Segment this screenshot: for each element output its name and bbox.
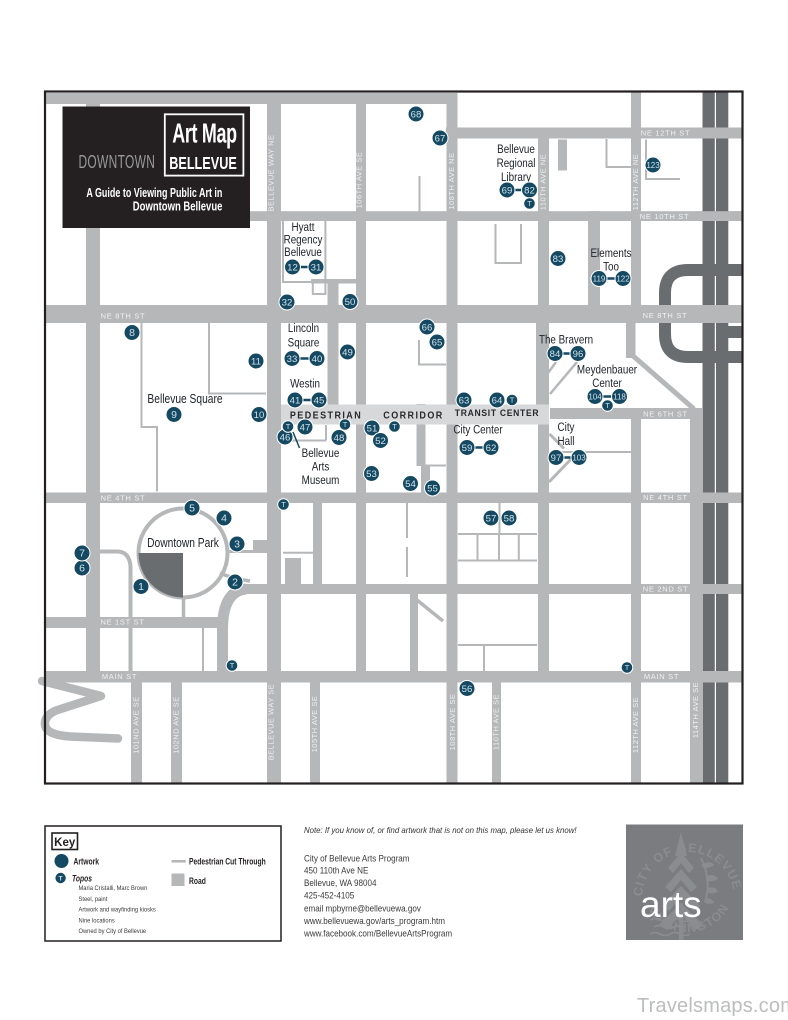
svg-text:40: 40 xyxy=(312,354,323,365)
svg-text:108TH AVE NE: 108TH AVE NE xyxy=(447,152,456,209)
svg-text:T: T xyxy=(510,396,515,405)
svg-text:Steel, paint: Steel, paint xyxy=(79,896,108,904)
svg-text:63: 63 xyxy=(459,396,470,407)
svg-text:112TH AVE SE: 112TH AVE SE xyxy=(631,697,640,753)
svg-text:Art Map: Art Map xyxy=(172,118,236,149)
svg-text:T: T xyxy=(625,663,630,672)
svg-text:Meydenbauer: Meydenbauer xyxy=(577,364,637,377)
svg-text:106TH AVE SE: 106TH AVE SE xyxy=(355,152,364,209)
svg-text:4: 4 xyxy=(221,513,227,525)
svg-text:Road: Road xyxy=(189,876,206,886)
svg-text:Bellevue: Bellevue xyxy=(497,143,535,156)
svg-text:64: 64 xyxy=(492,396,503,407)
svg-text:Hyatt: Hyatt xyxy=(292,221,315,234)
svg-text:Elements: Elements xyxy=(590,247,631,260)
svg-text:10: 10 xyxy=(254,410,265,421)
svg-text:T: T xyxy=(527,199,532,208)
svg-text:55: 55 xyxy=(427,484,438,495)
svg-text:96: 96 xyxy=(573,349,584,360)
svg-text:City Center: City Center xyxy=(453,424,503,437)
svg-text:BELLEVUE WAY NE: BELLEVUE WAY NE xyxy=(267,135,276,212)
svg-text:Square: Square xyxy=(288,337,320,350)
svg-text:7: 7 xyxy=(79,548,85,560)
svg-text:MAIN ST: MAIN ST xyxy=(102,672,137,681)
svg-text:112TH AVE NE: 112TH AVE NE xyxy=(631,154,640,211)
svg-text:49: 49 xyxy=(342,348,353,359)
svg-text:52: 52 xyxy=(375,436,386,447)
svg-text:Lincoln: Lincoln xyxy=(288,322,319,335)
svg-text:T: T xyxy=(392,422,397,431)
svg-text:425-452-4105: 425-452-4105 xyxy=(304,890,355,900)
svg-text:47: 47 xyxy=(300,423,311,434)
svg-text:45: 45 xyxy=(314,396,325,407)
svg-text:46: 46 xyxy=(280,433,291,444)
svg-text:MAIN ST: MAIN ST xyxy=(644,672,679,681)
svg-text:59: 59 xyxy=(462,443,473,454)
svg-text:Key: Key xyxy=(54,837,76,849)
svg-text:54: 54 xyxy=(405,479,416,490)
svg-text:108TH AVE SE: 108TH AVE SE xyxy=(448,694,457,751)
svg-text:Downtown Park: Downtown Park xyxy=(147,537,219,550)
svg-text:101ND AVE SE: 101ND AVE SE xyxy=(132,696,141,754)
svg-text:97: 97 xyxy=(551,453,562,464)
svg-text:Artwork: Artwork xyxy=(74,857,100,867)
svg-text:Museum: Museum xyxy=(302,474,340,487)
svg-text:31: 31 xyxy=(311,263,322,274)
svg-text:83: 83 xyxy=(553,254,564,265)
svg-text:Bellevue Square: Bellevue Square xyxy=(147,393,222,406)
svg-text:Travelsmaps.com: Travelsmaps.com xyxy=(637,995,788,1017)
svg-text:arts: arts xyxy=(640,884,702,925)
svg-text:5: 5 xyxy=(189,503,195,515)
svg-text:DOWNTOWN: DOWNTOWN xyxy=(78,153,155,173)
svg-text:3: 3 xyxy=(234,539,240,551)
svg-text:A Guide to Viewing Public Art: A Guide to Viewing Public Art in xyxy=(86,187,222,201)
svg-text:50: 50 xyxy=(345,297,356,308)
svg-text:57: 57 xyxy=(486,514,497,525)
svg-text:119: 119 xyxy=(593,274,606,283)
svg-text:T: T xyxy=(230,661,235,670)
svg-text:NE 12TH ST: NE 12TH ST xyxy=(641,129,691,138)
svg-text:104: 104 xyxy=(588,392,602,401)
svg-text:Regional: Regional xyxy=(497,157,536,170)
svg-text:T: T xyxy=(286,422,291,431)
svg-text:41: 41 xyxy=(290,396,301,407)
svg-text:NE 4TH ST: NE 4TH ST xyxy=(643,493,688,502)
svg-text:Nine locations: Nine locations xyxy=(79,917,115,925)
svg-text:Hall: Hall xyxy=(558,435,575,448)
svg-text:110TH AVE SE: 110TH AVE SE xyxy=(492,694,501,750)
svg-text:www.facebook.com/BellevueArtsP: www.facebook.com/BellevueArtsProgram xyxy=(303,928,452,938)
svg-text:NE 1ST ST: NE 1ST ST xyxy=(100,618,144,627)
svg-text:118: 118 xyxy=(613,392,626,401)
svg-text:66: 66 xyxy=(422,323,433,334)
svg-text:9: 9 xyxy=(171,409,177,421)
svg-text:BELLEVUE: BELLEVUE xyxy=(169,154,237,174)
svg-text:48: 48 xyxy=(334,433,345,444)
svg-text:TRANSIT CENTER: TRANSIT CENTER xyxy=(455,408,539,419)
svg-text:82: 82 xyxy=(524,186,535,197)
svg-text:Westin: Westin xyxy=(290,378,320,391)
svg-text:Bellevue: Bellevue xyxy=(302,447,340,460)
svg-text:12: 12 xyxy=(287,263,298,274)
svg-text:102ND AVE SE: 102ND AVE SE xyxy=(172,696,181,754)
svg-text:T: T xyxy=(343,420,348,429)
svg-text:56: 56 xyxy=(462,684,473,695)
svg-text:City: City xyxy=(558,421,575,434)
svg-text:Arts: Arts xyxy=(312,461,330,474)
svg-text:53: 53 xyxy=(366,469,377,480)
svg-text:103: 103 xyxy=(572,453,586,462)
svg-text:62: 62 xyxy=(486,443,497,454)
svg-text:Topos: Topos xyxy=(72,874,92,884)
svg-text:Pedestrian Cut Through: Pedestrian Cut Through xyxy=(189,857,266,867)
svg-text:67: 67 xyxy=(435,134,446,145)
svg-text:69: 69 xyxy=(502,186,513,197)
svg-text:8: 8 xyxy=(129,327,135,339)
svg-text:CORRIDOR: CORRIDOR xyxy=(383,410,443,422)
svg-text:2: 2 xyxy=(232,577,238,589)
svg-text:123: 123 xyxy=(646,161,660,170)
svg-text:33: 33 xyxy=(287,354,298,365)
svg-text:51: 51 xyxy=(367,424,378,435)
svg-text:1: 1 xyxy=(138,581,144,593)
svg-text:122: 122 xyxy=(616,274,630,283)
svg-text:T: T xyxy=(281,500,286,509)
svg-text:32: 32 xyxy=(282,298,293,309)
svg-text:Note: If you know of, or find: Note: If you know of, or find artwork th… xyxy=(304,826,577,835)
svg-text:Bellevue, WA 98004: Bellevue, WA 98004 xyxy=(304,878,377,888)
svg-text:NE 8TH ST: NE 8TH ST xyxy=(101,312,146,321)
svg-text:Artwork and wayfinding kiosks: Artwork and wayfinding kiosks xyxy=(79,906,156,914)
svg-text:Owned by City of Bellevue: Owned by City of Bellevue xyxy=(79,927,147,935)
svg-text:58: 58 xyxy=(504,514,515,525)
svg-text:110TH AVE NE: 110TH AVE NE xyxy=(539,154,548,211)
svg-text:Maria Cristalli, Marc Brown: Maria Cristalli, Marc Brown xyxy=(79,885,148,893)
svg-text:Bellevue: Bellevue xyxy=(284,246,322,259)
svg-text:NE 6TH ST: NE 6TH ST xyxy=(643,410,688,419)
svg-text:T: T xyxy=(59,876,63,883)
svg-text:Too: Too xyxy=(603,261,619,274)
svg-text:Regency: Regency xyxy=(284,234,323,247)
svg-text:The Bravern: The Bravern xyxy=(539,334,593,347)
svg-text:114TH AVE SE: 114TH AVE SE xyxy=(691,682,700,738)
svg-text:105TH AVE SE: 105TH AVE SE xyxy=(310,696,319,753)
svg-text:NE 2ND ST: NE 2ND ST xyxy=(643,585,688,594)
svg-text:NE 8TH ST: NE 8TH ST xyxy=(643,311,688,320)
svg-text:84: 84 xyxy=(550,349,561,360)
svg-text:City of Bellevue Arts Program: City of Bellevue Arts Program xyxy=(304,853,410,863)
svg-text:email mpbyrne@bellevuewa.gov: email mpbyrne@bellevuewa.gov xyxy=(304,903,422,913)
svg-text:6: 6 xyxy=(79,563,85,575)
svg-text:65: 65 xyxy=(432,338,443,349)
svg-text:T: T xyxy=(605,401,610,410)
svg-text:www.bellevuewa.gov/arts_progra: www.bellevuewa.gov/arts_program.htm xyxy=(303,916,445,926)
svg-text:Downtown Bellevue: Downtown Bellevue xyxy=(133,200,223,214)
svg-text:450 110th Ave NE: 450 110th Ave NE xyxy=(304,865,369,875)
svg-text:NE 10TH ST: NE 10TH ST xyxy=(640,212,690,221)
svg-text:68: 68 xyxy=(411,110,422,121)
svg-text:BELLEVUE WAY SE: BELLEVUE WAY SE xyxy=(267,684,276,761)
svg-text:11: 11 xyxy=(251,357,261,368)
svg-text:NE 4TH ST: NE 4TH ST xyxy=(101,494,146,503)
